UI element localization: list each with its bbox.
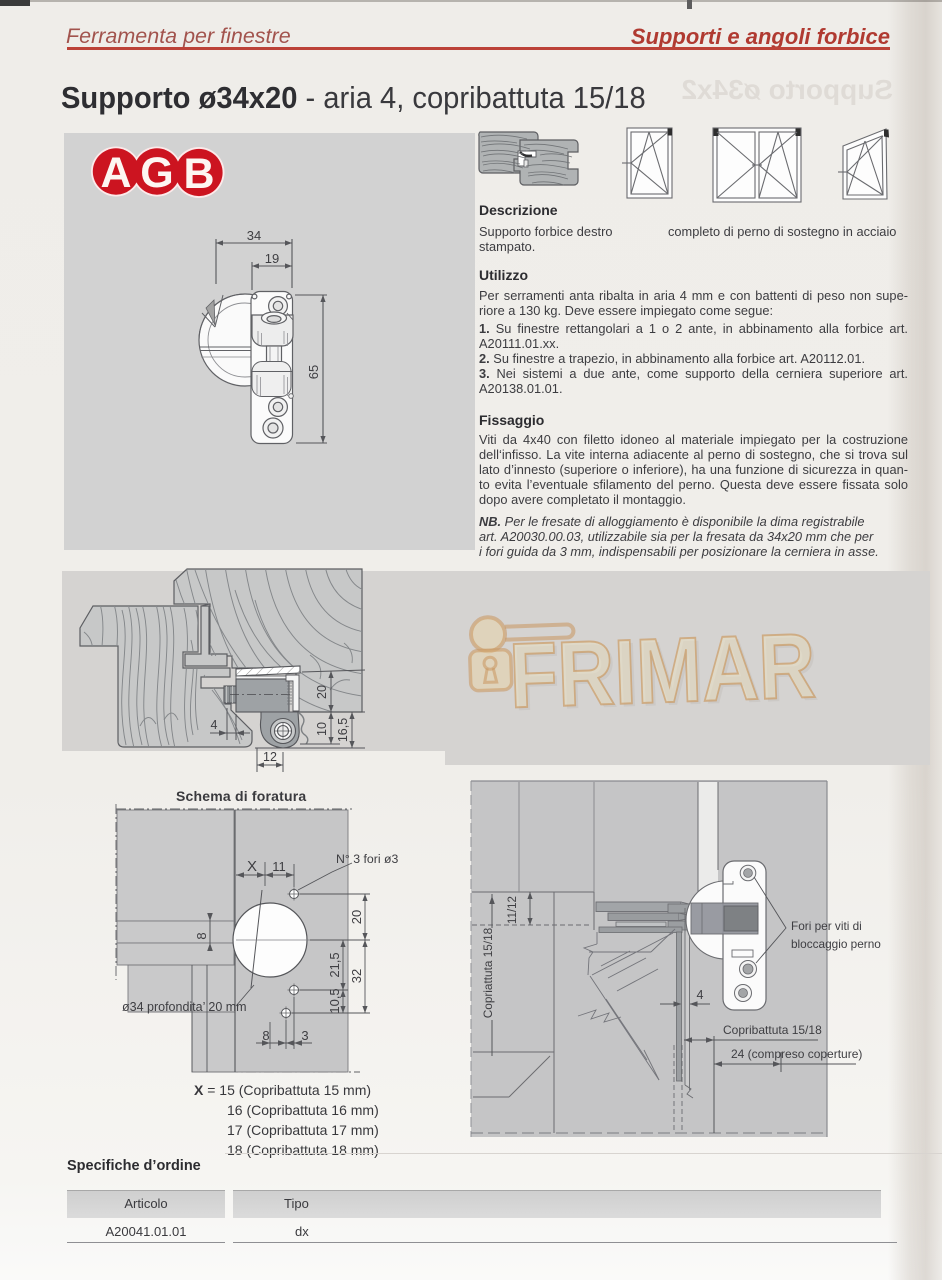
svg-text:16,5: 16,5	[336, 718, 350, 742]
svg-text:10: 10	[315, 722, 329, 736]
svg-text:4: 4	[211, 718, 218, 732]
svg-text:X: X	[247, 858, 257, 875]
svg-text:Fori per viti di: Fori per viti di	[791, 919, 862, 933]
svg-text:12: 12	[263, 750, 277, 764]
svg-text:21,5: 21,5	[327, 952, 342, 977]
svg-text:24 (compreso coperture): 24 (compreso coperture)	[731, 1047, 862, 1061]
svg-text:10,5: 10,5	[327, 988, 342, 1013]
svg-text:bloccaggio perno: bloccaggio perno	[791, 937, 881, 951]
svg-text:11/12: 11/12	[507, 896, 519, 924]
svg-text:8: 8	[194, 932, 209, 939]
svg-text:20: 20	[349, 910, 364, 924]
svg-text:32: 32	[349, 969, 364, 983]
svg-text:Copribattuta 15/18: Copribattuta 15/18	[723, 1023, 822, 1037]
svg-text:3: 3	[301, 1028, 308, 1043]
svg-text:4: 4	[697, 988, 704, 1002]
svg-text:34: 34	[247, 228, 261, 243]
svg-text:19: 19	[265, 251, 279, 266]
svg-text:8: 8	[262, 1028, 269, 1043]
svg-text:11: 11	[272, 859, 286, 874]
svg-text:Copriattuta 15/18: Copriattuta 15/18	[481, 927, 495, 1018]
svg-text:65: 65	[306, 365, 321, 379]
svg-text:ø34 profondita’ 20 mm: ø34 profondita’ 20 mm	[122, 1000, 247, 1014]
svg-text:20: 20	[315, 685, 329, 699]
svg-text:N° 3 fori ø3: N° 3 fori ø3	[336, 852, 398, 866]
svg-text:FRIMAR: FRIMAR	[508, 615, 817, 728]
